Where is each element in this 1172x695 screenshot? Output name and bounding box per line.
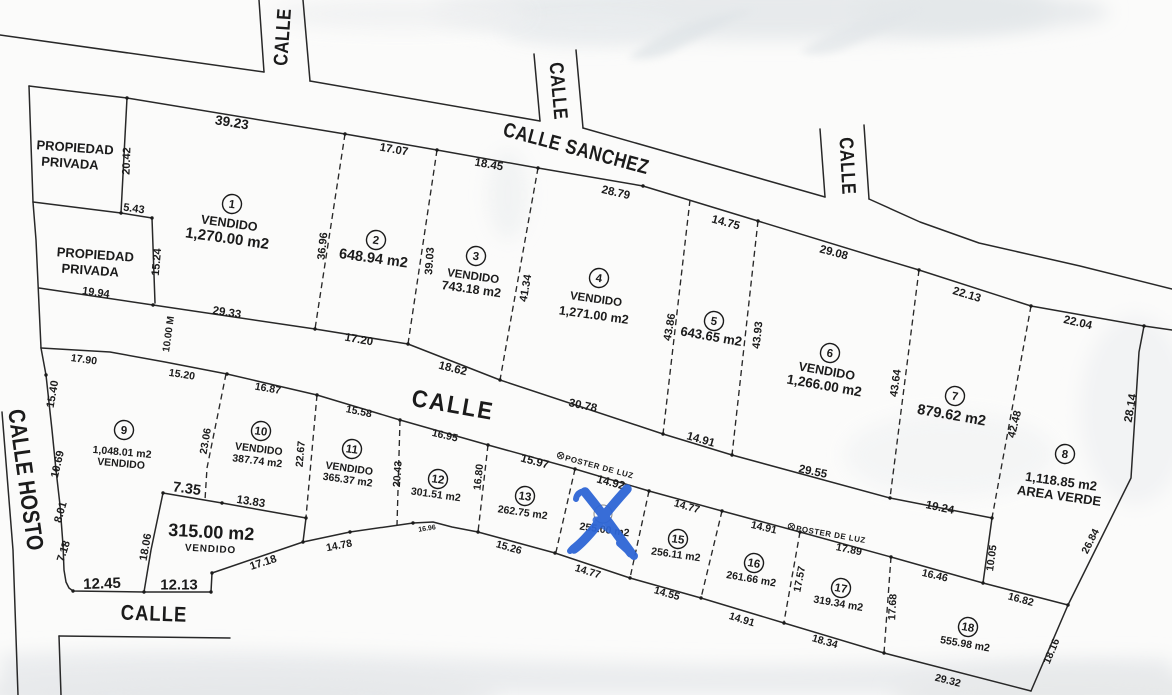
svg-text:15: 15	[671, 533, 686, 547]
svg-text:17: 17	[833, 582, 848, 596]
svg-text:12.13: 12.13	[160, 576, 198, 593]
svg-text:15.24: 15.24	[150, 247, 164, 276]
svg-text:CALLE: CALLE	[270, 8, 296, 67]
svg-text:12: 12	[431, 473, 445, 487]
svg-text:9: 9	[120, 425, 127, 438]
svg-text:11: 11	[345, 443, 359, 457]
svg-text:10: 10	[254, 425, 268, 438]
svg-text:20.43: 20.43	[391, 460, 405, 487]
svg-text:39.03: 39.03	[423, 247, 437, 275]
svg-text:CALLE: CALLE	[835, 137, 860, 196]
svg-text:13: 13	[518, 490, 532, 504]
svg-text:22.67: 22.67	[294, 440, 308, 467]
svg-text:17.68: 17.68	[886, 593, 899, 620]
svg-text:20.42: 20.42	[121, 147, 134, 175]
svg-text:16: 16	[746, 557, 761, 571]
svg-text:12.45: 12.45	[83, 575, 121, 593]
svg-text:CALLE: CALLE	[120, 601, 187, 627]
